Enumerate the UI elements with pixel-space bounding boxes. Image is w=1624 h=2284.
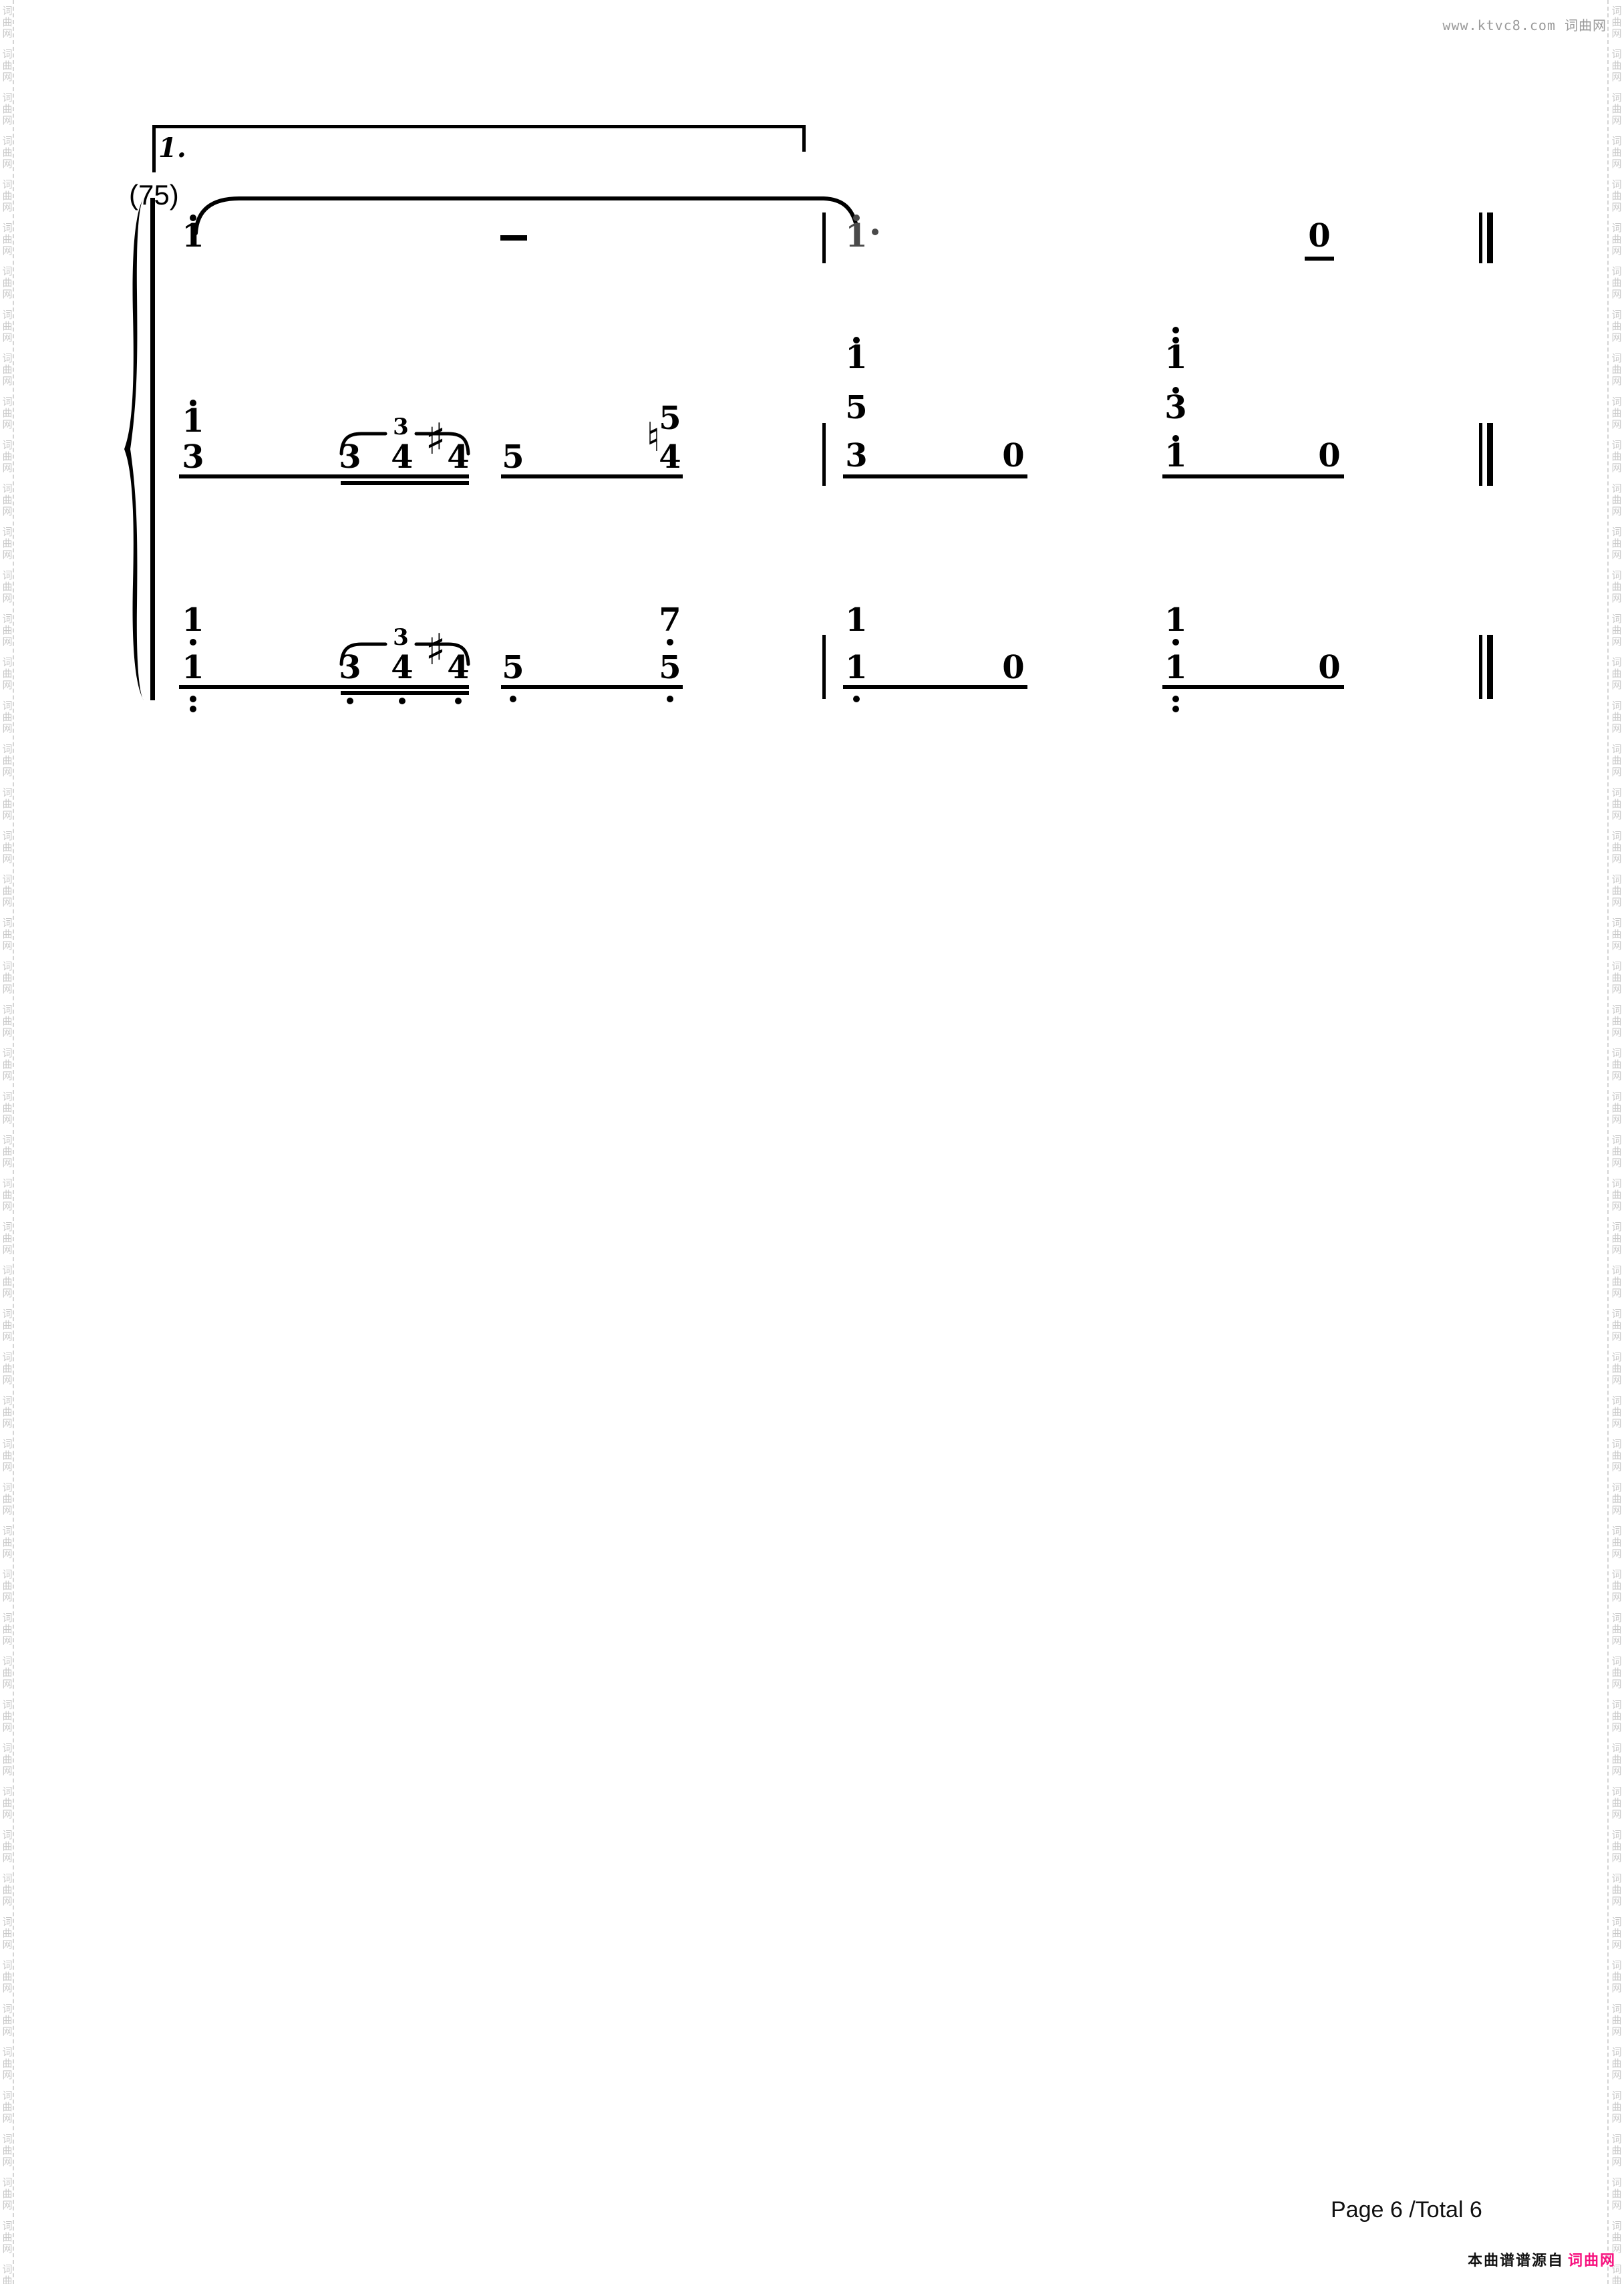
note-digit: 5 — [502, 652, 524, 684]
page-indicator: Page 6 /Total 6 — [1331, 2197, 1482, 2223]
note-digit: 1 — [1164, 341, 1186, 374]
note-digit: 1 — [182, 652, 204, 684]
note-digit: 1 — [845, 341, 867, 374]
beam — [501, 685, 683, 689]
note-digit: 3 — [1164, 392, 1186, 424]
barline — [822, 212, 826, 263]
note-digit: 3 — [339, 652, 361, 684]
beam — [1162, 685, 1344, 689]
note-digit: 0 — [1318, 440, 1340, 472]
system-barline — [150, 198, 155, 700]
note-digit: 1 — [182, 405, 204, 437]
octave-dot — [399, 698, 405, 704]
note-digit: 1 — [1164, 652, 1186, 684]
note-digit: 5 — [845, 392, 867, 424]
beam — [1162, 474, 1344, 478]
barline — [1479, 423, 1482, 486]
source-site[interactable]: 词曲网 — [1568, 2249, 1616, 2270]
volta-line — [152, 125, 156, 172]
source-prefix: 本曲谱谱源自 — [1468, 2249, 1564, 2270]
barline — [1487, 635, 1493, 699]
tuplet-number: 3 — [393, 626, 409, 649]
octave-dot — [667, 696, 673, 702]
note-digit: 5 — [659, 652, 681, 684]
beam — [179, 685, 469, 689]
octave-dot — [667, 639, 673, 646]
octave-dot — [190, 639, 196, 646]
octave-dot — [853, 215, 860, 221]
note-digit: 1 — [1164, 440, 1186, 472]
note-digit: 4 — [659, 441, 681, 473]
note-digit: 1 — [182, 220, 204, 252]
barline — [822, 423, 826, 486]
sharp-accidental: ♯ — [426, 629, 446, 672]
note-digit: 4 — [391, 441, 413, 473]
note-digit: 0 — [1002, 652, 1024, 684]
note-digit: 3 — [182, 441, 204, 473]
beam — [341, 691, 469, 695]
note-digit: 5 — [502, 441, 524, 473]
barline — [822, 635, 826, 699]
octave-dot — [1172, 696, 1179, 702]
octave-dot — [347, 698, 353, 704]
note-digit: 1 — [1164, 604, 1186, 636]
note-digit: 4 — [447, 652, 469, 684]
note-digit: 5 — [659, 402, 681, 434]
beam — [341, 481, 469, 485]
octave-dot — [1172, 327, 1179, 333]
note-digit: 4 — [391, 652, 413, 684]
beam — [843, 685, 1027, 689]
dash-line — [500, 235, 527, 241]
note-digit: 3 — [339, 441, 361, 473]
barline — [1479, 212, 1482, 263]
system-brace — [124, 198, 144, 700]
note-digit: 1 — [845, 220, 867, 252]
octave-dot — [455, 698, 462, 704]
slur — [196, 198, 857, 233]
rest-underline — [1305, 257, 1334, 261]
octave-dot — [872, 229, 878, 235]
note-digit: 0 — [1308, 220, 1330, 252]
note-digit: 1 — [845, 652, 867, 684]
octave-dot — [510, 696, 516, 702]
octave-dot — [1172, 706, 1179, 712]
note-digit: 7 — [659, 604, 681, 636]
sheet-page: 词曲网词曲网词曲网词曲网词曲网词曲网词曲网词曲网词曲网词曲网词曲网词曲网词曲网词… — [0, 0, 1624, 2284]
barline — [1487, 212, 1493, 263]
barline — [1487, 423, 1493, 486]
note-digit: 0 — [1318, 652, 1340, 684]
beam — [179, 474, 469, 478]
volta-line — [802, 125, 806, 152]
note-digit: 3 — [845, 440, 867, 472]
score-vector-layer — [0, 0, 1624, 2284]
octave-dot — [853, 696, 860, 702]
octave-dot — [190, 696, 196, 702]
beam — [843, 474, 1027, 478]
sharp-accidental: ♯ — [426, 418, 446, 461]
octave-dot — [190, 215, 196, 221]
volta-line — [152, 125, 806, 128]
note-digit: 4 — [447, 441, 469, 473]
beam — [501, 474, 683, 478]
octave-dot — [1172, 639, 1179, 646]
note-digit: 1 — [845, 604, 867, 636]
tuplet-number: 3 — [393, 416, 409, 438]
octave-dot — [190, 706, 196, 712]
barline — [1479, 635, 1482, 699]
note-digit: 0 — [1002, 440, 1024, 472]
note-digit: 1 — [182, 604, 204, 636]
